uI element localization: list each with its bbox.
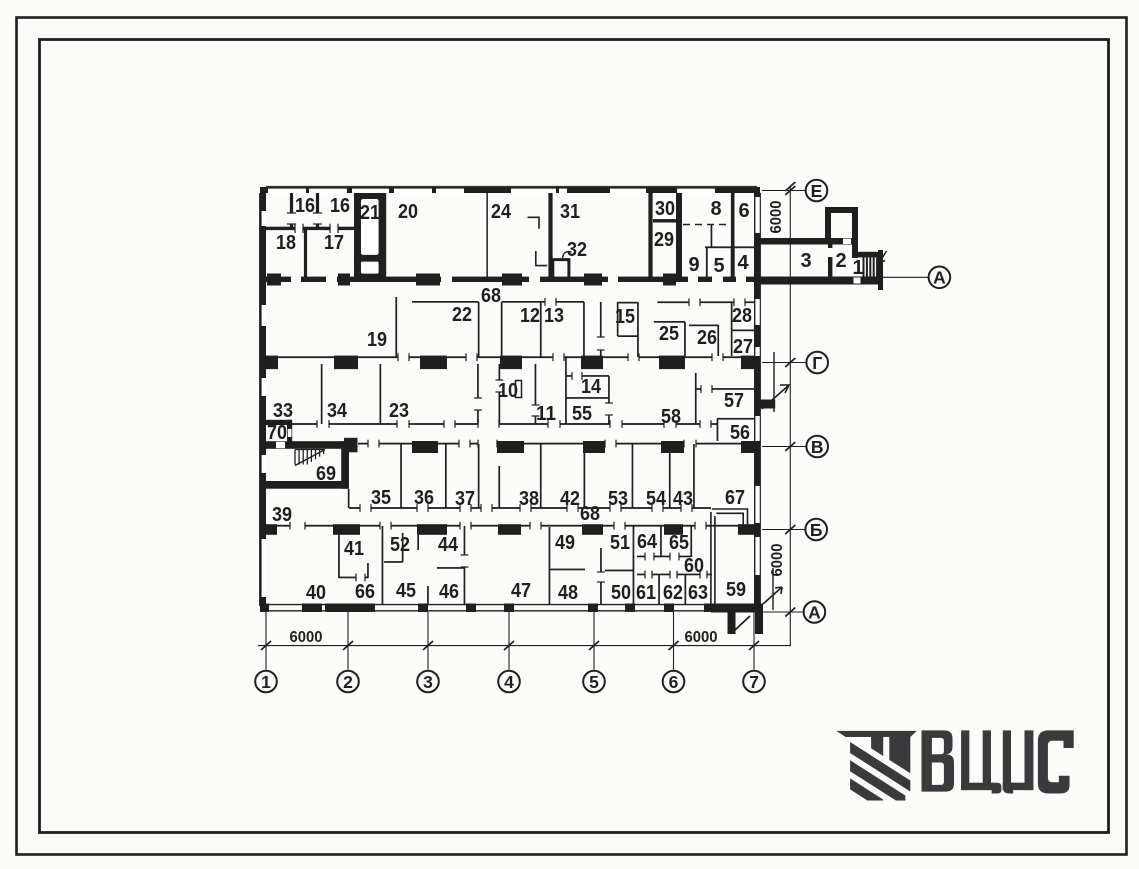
svg-text:6: 6 — [738, 200, 749, 222]
svg-text:28: 28 — [732, 305, 752, 327]
svg-text:66: 66 — [355, 581, 375, 603]
svg-text:44: 44 — [438, 534, 459, 556]
svg-text:63: 63 — [688, 582, 708, 604]
svg-text:31: 31 — [560, 201, 580, 223]
svg-text:60: 60 — [684, 555, 704, 577]
svg-text:16: 16 — [295, 195, 315, 217]
svg-text:10: 10 — [498, 380, 518, 402]
svg-text:56: 56 — [730, 422, 750, 444]
svg-text:22: 22 — [452, 304, 472, 326]
svg-text:14: 14 — [581, 376, 602, 398]
svg-text:53: 53 — [608, 488, 628, 510]
svg-text:47: 47 — [511, 580, 531, 602]
svg-text:17: 17 — [324, 232, 344, 254]
svg-text:21: 21 — [360, 202, 380, 224]
svg-text:50: 50 — [611, 582, 631, 604]
svg-text:67: 67 — [725, 487, 745, 509]
svg-text:5: 5 — [713, 255, 724, 277]
svg-text:В: В — [811, 437, 824, 457]
svg-text:7: 7 — [749, 672, 759, 692]
svg-text:6: 6 — [669, 672, 679, 692]
svg-text:15: 15 — [615, 306, 635, 328]
svg-text:57: 57 — [724, 390, 744, 412]
svg-text:35: 35 — [371, 487, 391, 509]
svg-text:Е: Е — [811, 181, 823, 201]
svg-text:18: 18 — [276, 232, 296, 254]
svg-text:46: 46 — [439, 581, 459, 603]
svg-text:40: 40 — [306, 582, 326, 604]
svg-text:А: А — [808, 602, 821, 622]
svg-text:6000: 6000 — [685, 629, 718, 646]
svg-text:26: 26 — [697, 327, 717, 349]
svg-text:64: 64 — [637, 531, 658, 553]
svg-text:54: 54 — [646, 488, 667, 510]
svg-text:38: 38 — [519, 488, 539, 510]
svg-text:36: 36 — [414, 487, 434, 509]
svg-text:16: 16 — [330, 195, 350, 217]
svg-text:49: 49 — [555, 532, 575, 554]
svg-text:24: 24 — [491, 201, 512, 223]
svg-text:2: 2 — [343, 672, 353, 692]
svg-text:69: 69 — [316, 463, 336, 485]
svg-text:12: 12 — [520, 305, 540, 327]
svg-text:55: 55 — [572, 403, 592, 425]
svg-text:4: 4 — [737, 252, 749, 274]
svg-text:61: 61 — [636, 582, 656, 604]
svg-text:1: 1 — [852, 257, 863, 279]
svg-text:30: 30 — [655, 198, 675, 220]
svg-text:45: 45 — [396, 580, 416, 602]
svg-text:65: 65 — [669, 532, 689, 554]
svg-text:58: 58 — [661, 406, 681, 428]
svg-text:Б: Б — [810, 520, 823, 540]
svg-text:6000: 6000 — [768, 200, 785, 233]
svg-text:2: 2 — [835, 250, 846, 272]
svg-text:68: 68 — [580, 503, 600, 525]
svg-text:3: 3 — [423, 672, 433, 692]
svg-text:5: 5 — [589, 672, 599, 692]
svg-text:11: 11 — [536, 403, 556, 425]
svg-text:20: 20 — [398, 201, 418, 223]
svg-text:13: 13 — [544, 305, 564, 327]
svg-text:29: 29 — [654, 229, 674, 251]
svg-text:41: 41 — [344, 538, 364, 560]
svg-text:4: 4 — [504, 672, 514, 692]
svg-text:62: 62 — [663, 582, 683, 604]
svg-text:А: А — [933, 268, 946, 288]
svg-text:19: 19 — [367, 329, 387, 351]
svg-text:3: 3 — [800, 250, 811, 272]
svg-text:6000: 6000 — [769, 543, 786, 576]
svg-text:33: 33 — [273, 400, 293, 422]
svg-text:25: 25 — [659, 323, 679, 345]
svg-text:34: 34 — [327, 400, 348, 422]
svg-text:8: 8 — [710, 198, 721, 220]
svg-text:52: 52 — [390, 534, 410, 556]
svg-text:70: 70 — [267, 422, 287, 444]
svg-text:48: 48 — [558, 582, 578, 604]
svg-text:43: 43 — [673, 488, 693, 510]
svg-text:6000: 6000 — [290, 629, 323, 646]
svg-text:59: 59 — [726, 579, 746, 601]
svg-text:39: 39 — [272, 504, 292, 526]
svg-text:27: 27 — [733, 336, 753, 358]
svg-text:9: 9 — [688, 254, 699, 276]
svg-text:51: 51 — [610, 532, 630, 554]
svg-text:37: 37 — [455, 488, 475, 510]
svg-text:68: 68 — [481, 285, 501, 307]
svg-text:32: 32 — [567, 239, 587, 261]
svg-text:Г: Г — [812, 353, 822, 373]
svg-text:42: 42 — [560, 488, 580, 510]
svg-text:1: 1 — [261, 672, 271, 692]
svg-text:23: 23 — [389, 400, 409, 422]
